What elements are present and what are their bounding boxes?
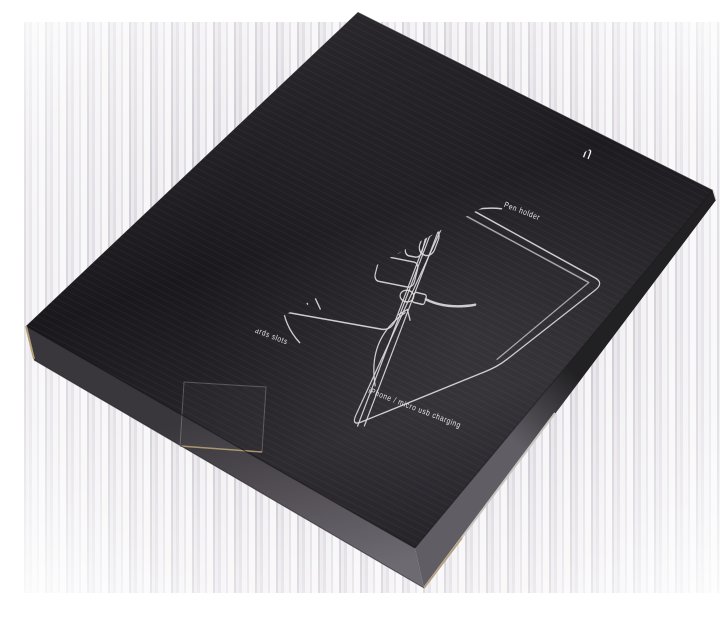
box-photo-svg: Powerbank Collection: [0, 0, 720, 621]
product-photo: Powerbank Collection: [0, 0, 720, 621]
thumb-tab: [180, 382, 266, 452]
box-top-face: [26, 12, 713, 548]
